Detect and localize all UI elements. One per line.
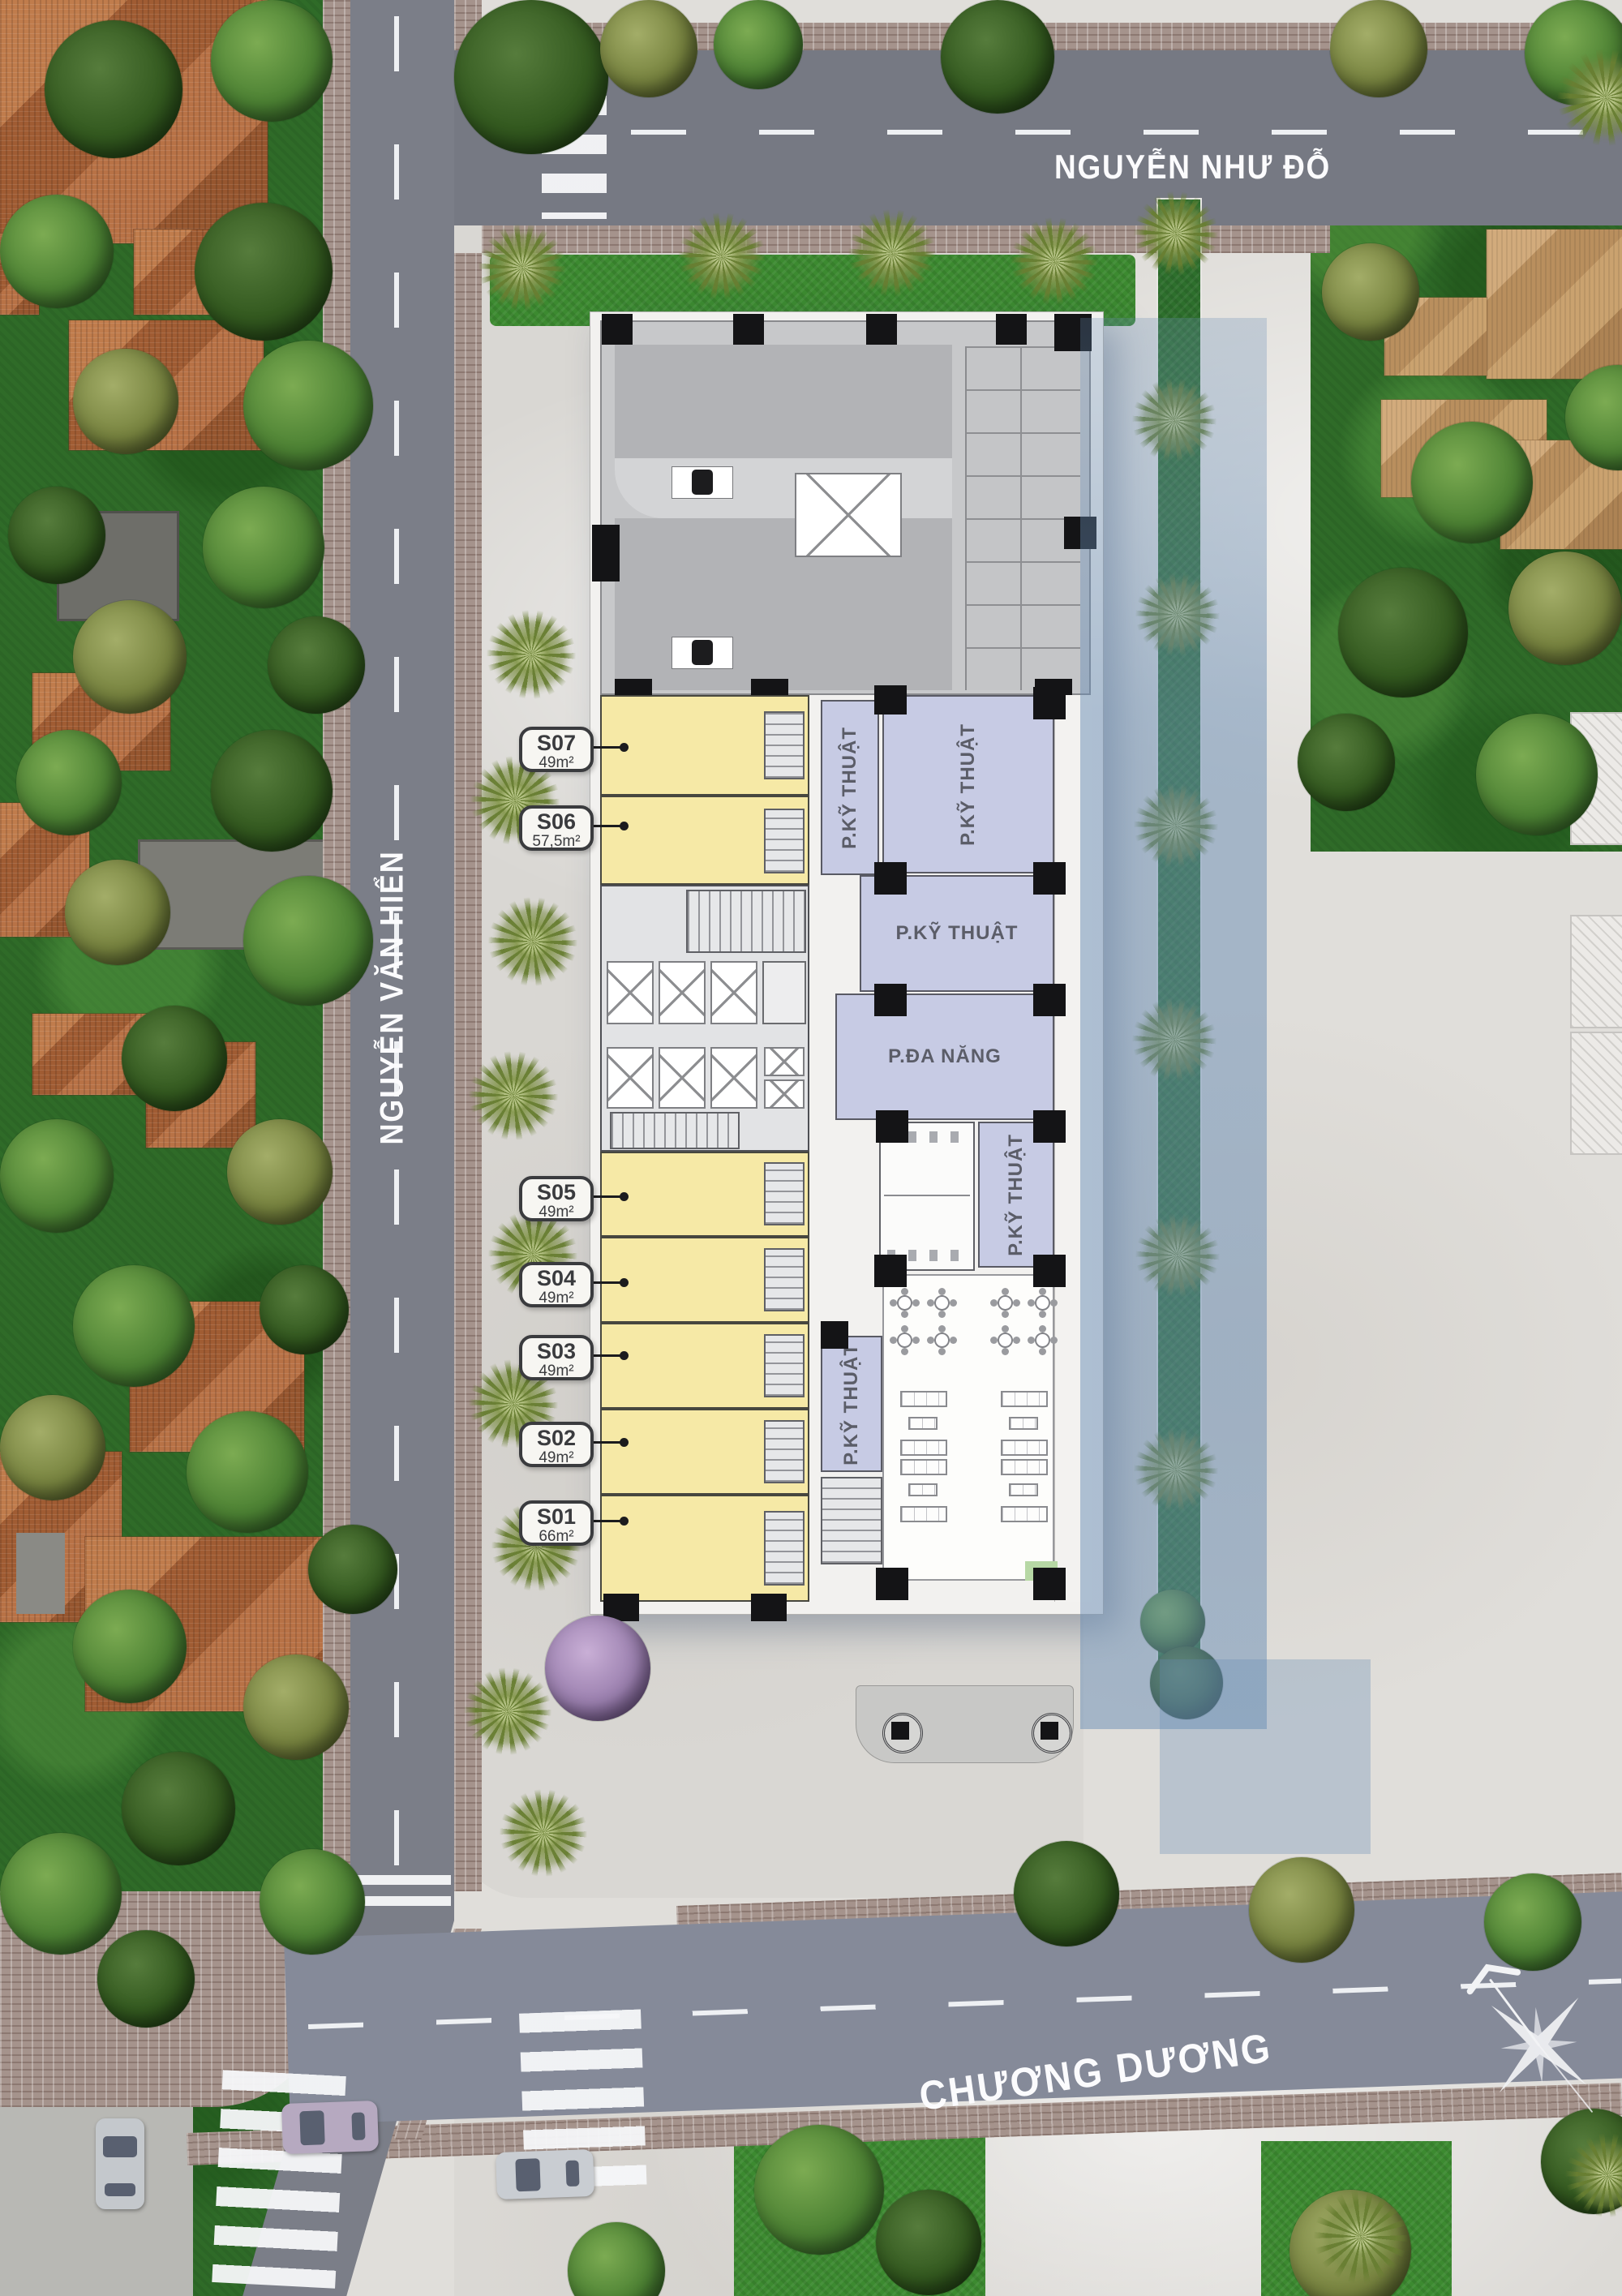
tree [1338, 568, 1468, 697]
car-lift-icon [672, 637, 733, 669]
tree [1249, 1857, 1354, 1963]
leader-dot [620, 1192, 629, 1201]
sofa [900, 1440, 947, 1456]
tree [941, 0, 1054, 114]
leader-dot [620, 1351, 629, 1360]
car-windshield [515, 2158, 540, 2191]
unit-tag-S02[interactable]: S02 49m² [519, 1422, 594, 1467]
core-stair-top [686, 890, 806, 953]
unit-tag-S06[interactable]: S06 57,5m² [519, 805, 594, 851]
sofa [908, 1417, 938, 1430]
unit-tag-S04[interactable]: S04 49m² [519, 1262, 594, 1307]
leader-dot [620, 1517, 629, 1526]
column [1033, 984, 1066, 1016]
unit-area: 49m² [522, 755, 590, 770]
car-glyph [692, 640, 713, 665]
column [876, 1568, 908, 1600]
unit-id: S06 [522, 811, 590, 834]
tree [0, 195, 114, 308]
house-roof-tan [1487, 230, 1622, 379]
elevator [710, 1047, 757, 1109]
flat-roof-building [16, 1533, 65, 1614]
cafe-table [934, 1295, 950, 1311]
tree [243, 1654, 349, 1760]
car-rear-window [565, 2161, 579, 2187]
tree [16, 730, 122, 835]
column [592, 525, 620, 582]
street-label-top: NGUYỄN NHƯ ĐỖ [1054, 148, 1331, 187]
unit-id: S05 [522, 1182, 590, 1204]
water-shadow-overlay [1080, 318, 1267, 1729]
column [1033, 1568, 1066, 1600]
tree [0, 1119, 114, 1233]
tree [122, 1752, 235, 1865]
column [1033, 687, 1066, 719]
tree [187, 1411, 308, 1533]
leader-dot [620, 822, 629, 830]
wc-divider [884, 1195, 970, 1196]
sofa [900, 1506, 947, 1522]
sofa [1001, 1459, 1048, 1475]
car-windshield [103, 2136, 137, 2157]
sofa [1001, 1506, 1048, 1522]
crosswalk-left-road [355, 1875, 451, 1917]
sofa [1001, 1440, 1048, 1456]
column [876, 1110, 908, 1143]
canopy-column [882, 1713, 923, 1753]
tree [0, 1833, 122, 1955]
cafe-table [897, 1333, 912, 1348]
white-building [1570, 915, 1622, 1028]
leader-dot [620, 1438, 629, 1447]
room-label: P.KỸ THUẬT [896, 922, 1019, 945]
compass-icon [1456, 1940, 1622, 2131]
elevator [607, 1047, 654, 1109]
water-shadow-overlay-south [1160, 1659, 1371, 1854]
palm-tree [1134, 191, 1218, 276]
car [496, 2149, 594, 2199]
room-multipurpose: P.ĐA NĂNG [835, 994, 1054, 1120]
parking-garage [600, 320, 1091, 695]
palm-tree [488, 897, 577, 986]
column [1033, 1255, 1066, 1287]
room-label: P.KỸ THUẬT [957, 723, 980, 846]
violet-tree [545, 1616, 650, 1721]
car-lift-icon [672, 466, 733, 499]
tree [308, 1525, 397, 1614]
leader-dot [620, 743, 629, 752]
room-technical-2: P.KỸ THUẬT [882, 695, 1054, 873]
palm-tree [1314, 2190, 1408, 2284]
tree [1411, 422, 1533, 543]
room-technical-1: P.KỸ THUẬT [821, 700, 879, 875]
room-label: P.KỸ THUẬT [839, 727, 861, 849]
cafe-table [998, 1333, 1013, 1348]
unit-stair [764, 1334, 805, 1397]
column [874, 1255, 907, 1287]
site-plan-canvas: P.KỸ THUẬT P.KỸ THUẬT P.KỸ THUẬT P.ĐA NĂ… [0, 0, 1622, 2296]
unit-area: 49m² [522, 1450, 590, 1466]
cafe-table [934, 1333, 950, 1348]
sofa [1009, 1417, 1038, 1430]
unit-id: S07 [522, 732, 590, 755]
sofa [900, 1391, 947, 1407]
column [996, 314, 1027, 345]
palm-tree [678, 212, 766, 300]
palm-tree [478, 224, 566, 311]
room-label: P.ĐA NĂNG [888, 1045, 1002, 1068]
car-glyph [692, 470, 713, 495]
column [602, 314, 633, 345]
tree [73, 600, 187, 714]
tree [243, 876, 373, 1006]
car-rear-window [351, 2113, 365, 2141]
tree [1298, 714, 1395, 811]
car-windshield [299, 2110, 324, 2145]
parked-car [96, 2118, 144, 2209]
unit-stair [764, 1248, 805, 1311]
unit-area: 57,5m² [522, 834, 590, 849]
unit-stair [764, 1420, 805, 1483]
street-label-left: NGUYỄN VĂN HIỂN [375, 850, 411, 1144]
core-room [762, 961, 806, 1024]
cafe-table [897, 1295, 912, 1311]
column [874, 685, 907, 715]
unit-id: S04 [522, 1268, 590, 1290]
lane-dash-top [503, 130, 1622, 135]
tree [211, 0, 333, 122]
tree [8, 487, 105, 584]
unit-stair [764, 1511, 805, 1586]
unit-stair [764, 711, 805, 779]
sofa [1001, 1391, 1048, 1407]
car-rear-window [105, 2183, 135, 2196]
shaft-small [764, 1079, 805, 1109]
sofa [908, 1483, 938, 1496]
tree [714, 0, 803, 89]
column [1033, 1110, 1066, 1143]
tree [73, 349, 178, 454]
building-floorplan: P.KỸ THUẬT P.KỸ THUẬT P.KỸ THUẬT P.ĐA NĂ… [590, 312, 1103, 1614]
tree [876, 2190, 981, 2295]
tree [260, 1849, 365, 1955]
tree [195, 203, 333, 341]
room-label: P.KỸ THUẬT [1005, 1134, 1028, 1256]
garage-shaft [795, 473, 902, 557]
unit-tag-S03[interactable]: S03 49m² [519, 1335, 594, 1380]
unit-id: S01 [522, 1506, 590, 1529]
column [751, 1594, 787, 1621]
tree [122, 1006, 227, 1111]
tree [1322, 243, 1419, 341]
sofa [900, 1459, 947, 1475]
tree [1508, 551, 1622, 665]
column [733, 314, 764, 345]
tree [1476, 714, 1598, 835]
column [874, 984, 907, 1016]
wc-block [879, 1122, 975, 1271]
tree [754, 2125, 884, 2255]
elevator [607, 961, 654, 1024]
tree [211, 730, 333, 852]
garage-zone [615, 345, 952, 458]
cafe-table [1035, 1295, 1050, 1311]
tree [600, 0, 697, 97]
tree [243, 341, 373, 470]
elevator [710, 961, 757, 1024]
unit-area: 49m² [522, 1290, 590, 1306]
shaft-small [764, 1047, 805, 1076]
unit-area: 66m² [522, 1529, 590, 1544]
column [874, 862, 907, 895]
tree [1014, 1841, 1119, 1946]
tree [260, 1265, 349, 1354]
canopy-column [1032, 1713, 1072, 1753]
column [821, 1321, 848, 1349]
unit-id: S03 [522, 1341, 590, 1363]
tree [268, 616, 365, 714]
tree [203, 487, 324, 608]
cafe-table [1035, 1333, 1050, 1348]
elevator [659, 961, 706, 1024]
tree [45, 20, 182, 158]
car [281, 2101, 379, 2154]
unit-area: 49m² [522, 1363, 590, 1379]
unit-stair [764, 1162, 805, 1225]
tree [97, 1930, 195, 2028]
elevator [659, 1047, 706, 1109]
core-stair-bottom [610, 1112, 740, 1149]
room-label: P.KỸ THUẬT [840, 1343, 863, 1466]
column [866, 314, 897, 345]
tree [73, 1265, 195, 1387]
leader-dot [620, 1278, 629, 1287]
tree [454, 0, 608, 154]
tree [1330, 0, 1427, 97]
sofa [1009, 1483, 1038, 1496]
room-technical-5: P.KỸ THUẬT [821, 1336, 882, 1472]
white-building [1570, 1032, 1622, 1155]
palm-tree [464, 1667, 551, 1755]
room-technical-4: P.KỸ THUẬT [978, 1122, 1054, 1268]
stair-south [821, 1477, 882, 1564]
tree [65, 860, 170, 965]
parking-stalls [965, 346, 1080, 690]
tree [227, 1119, 333, 1225]
column [1033, 862, 1066, 895]
unit-tag-S05[interactable]: S05 49m² [519, 1176, 594, 1221]
unit-tag-S07[interactable]: S07 49m² [519, 727, 594, 772]
palm-tree [487, 610, 576, 699]
palm-tree [500, 1789, 587, 1877]
canopy-column-core [1041, 1722, 1058, 1740]
unit-id: S02 [522, 1427, 590, 1450]
canopy-column-core [891, 1722, 909, 1740]
unit-tag-S01[interactable]: S01 66m² [519, 1500, 594, 1546]
unit-stair [764, 809, 805, 873]
tree [0, 1395, 105, 1500]
cafe-table [998, 1295, 1013, 1311]
palm-tree [848, 209, 936, 297]
unit-area: 49m² [522, 1204, 590, 1220]
tree [73, 1590, 187, 1703]
palm-tree [469, 1051, 558, 1140]
palm-tree [1011, 217, 1098, 305]
